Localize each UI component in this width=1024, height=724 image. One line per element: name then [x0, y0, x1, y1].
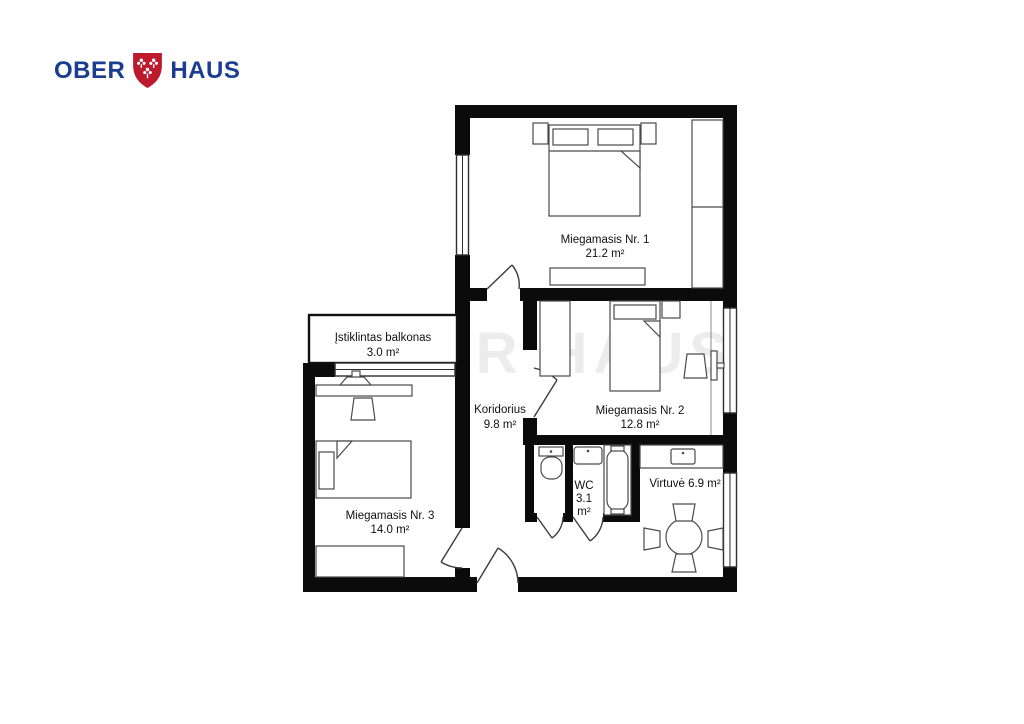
bathroom-sink: [574, 447, 602, 464]
label-corridor-area: 9.8 m²: [484, 419, 517, 431]
desk-chair-bedroom3: [351, 398, 375, 420]
wall-bedroom1-bottom-right: [520, 288, 737, 301]
pillow-bedroom2: [614, 305, 656, 319]
wall-wc-left: [525, 445, 534, 513]
door-entrance: [477, 548, 518, 583]
label-balcony-area: 3.0 m²: [367, 347, 400, 359]
wardrobe-bedroom2: [540, 301, 570, 376]
door-toilet: [537, 517, 563, 538]
wall-corridor-bedroom2-lower: [523, 418, 537, 435]
kitchen-faucet: [682, 452, 685, 455]
bedroom3-furniture: [316, 371, 412, 577]
dining-chair-top: [673, 504, 695, 521]
dresser: [550, 268, 645, 285]
dining-chair-right: [708, 528, 723, 550]
floorplan-page: OBER HAUS OBER HAUS: [0, 0, 1024, 724]
wardrobe-bedroom3: [316, 546, 404, 577]
label-wc-unit: m²: [577, 506, 591, 518]
wall-desk-stem: [717, 363, 724, 368]
wall-left-upper: [455, 118, 470, 155]
wall-bedroom3-left: [303, 377, 315, 577]
nightstand-left: [533, 123, 548, 144]
wall-top: [455, 105, 737, 118]
pillow-left: [553, 129, 588, 145]
wall-wc-kitchen: [631, 445, 640, 513]
wall-bottom-left: [303, 577, 477, 592]
dining-chair-bottom: [672, 554, 696, 572]
door-bedroom1: [487, 265, 519, 289]
desk-bedroom3: [316, 385, 412, 396]
wall-bedroom1-bottom-left: [455, 288, 487, 301]
nightstand-right: [641, 123, 656, 144]
wall-wc-stub1: [525, 513, 537, 522]
wall-corridor-bedroom2-upper: [523, 301, 537, 350]
label-bedroom3-area: 14.0 m²: [371, 524, 410, 536]
bedroom1-furniture: [533, 120, 723, 288]
label-wc-area: 3.1: [576, 493, 592, 505]
bathtub-faucet-bottom: [611, 509, 624, 514]
label-bedroom1-name: Miegamasis Nr. 1: [561, 234, 650, 246]
wall-wc-stub2: [563, 513, 573, 522]
wall-balcony-stub: [303, 363, 335, 377]
wardrobe-bedroom1: [692, 120, 723, 288]
floor-plan: OBER HAUS: [0, 0, 1024, 724]
label-bedroom2-area: 12.8 m²: [621, 419, 660, 431]
kitchen-furniture: [640, 445, 723, 572]
kitchen-sink: [671, 449, 695, 464]
label-bedroom3-name: Miegamasis Nr. 3: [346, 510, 435, 522]
label-balcony-name: Įstiklintas balkonas: [335, 332, 432, 344]
label-bedroom2-name: Miegamasis Nr. 2: [596, 405, 685, 417]
toilet-button: [550, 450, 553, 453]
wall-bottom-right: [518, 577, 737, 592]
label-wc-name: WC: [574, 480, 593, 492]
pillow-right: [598, 129, 633, 145]
label-bedroom1-area: 21.2 m²: [586, 248, 625, 260]
wall-right-upper: [723, 118, 737, 308]
dining-chair-left: [644, 528, 660, 550]
label-corridor-name: Koridorius: [474, 404, 526, 416]
toilet-bowl: [541, 457, 562, 479]
dining-table: [666, 519, 702, 555]
door-bathroom: [573, 517, 603, 541]
bathtub-inner: [607, 450, 628, 510]
wall-wc-divider: [565, 445, 573, 513]
wall-desk-bedroom2: [711, 351, 717, 380]
label-kitchen: Virtuvė 6.9 m²: [649, 478, 721, 490]
nightstand-bedroom2: [662, 301, 680, 318]
sink-faucet: [587, 450, 590, 453]
door-bedroom3: [441, 528, 462, 568]
pillow-bedroom3: [319, 452, 334, 489]
wall-bedroom2-bottom: [523, 435, 737, 445]
bathtub-faucet-top: [611, 446, 624, 451]
desk-chair-bedroom2: [684, 354, 707, 378]
